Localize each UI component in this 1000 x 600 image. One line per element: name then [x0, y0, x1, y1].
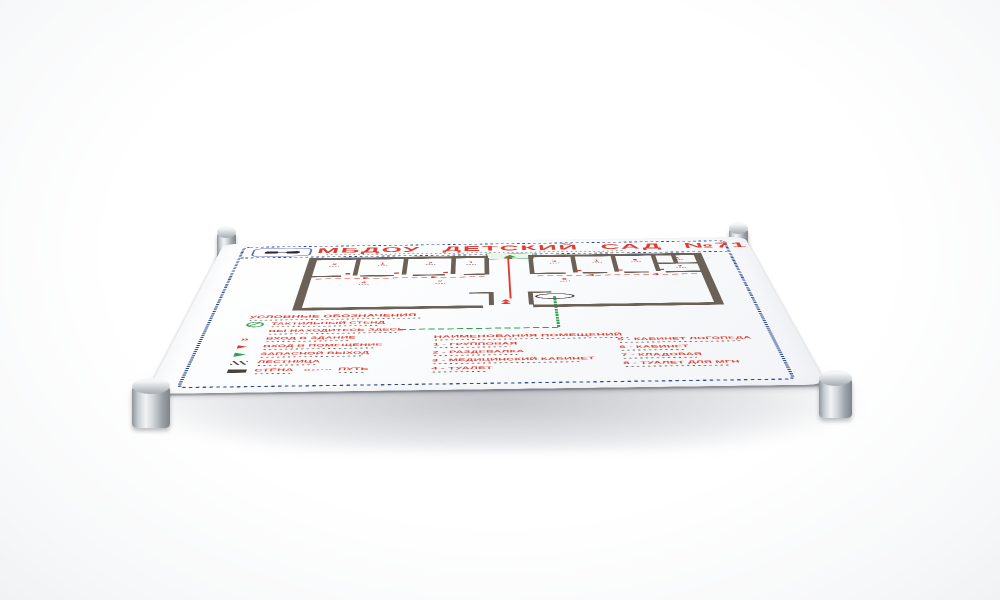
floor-plan: 212131567842	[292, 253, 724, 311]
room-number-marker: 1	[591, 260, 602, 263]
plan-wall	[535, 272, 566, 274]
room-number-marker: 1	[377, 262, 388, 265]
route-arrow-icon	[651, 273, 658, 275]
room-entrance-mark	[618, 269, 623, 270]
plan-wall	[469, 292, 489, 294]
you-are-here-dash-icon	[243, 330, 269, 334]
plan-wall	[402, 259, 409, 275]
braille-dots	[631, 261, 641, 262]
legend-item-emergency-exit: ЗАПАСНОЙ ВЫХОД	[233, 351, 370, 359]
room-number-marker: 4	[358, 281, 369, 285]
route-arrow-icon	[587, 274, 594, 276]
braille-dots	[559, 281, 570, 282]
scene: МБДОУ ДЕТСКИЙ САД №71	[0, 0, 1000, 600]
room-number-marker: 2	[329, 263, 340, 266]
plan-wall	[583, 272, 608, 274]
room-list-item: 5 - КАБИНЕТ ЛОГОПЕДА	[617, 336, 753, 344]
room-entrance-mark	[394, 272, 399, 273]
you-are-here-line-vertical	[553, 296, 560, 327]
legend-label: ПУТЬ	[338, 367, 369, 371]
plan-wall	[360, 275, 394, 277]
room-list-item: 8 - ТУАЛЕТ ДЛЯ МГН	[623, 360, 742, 368]
plan-wall	[533, 291, 552, 293]
plan-wall	[464, 274, 485, 276]
legend-item-you-are-here: ВЫ НАХОДИТЕСЬ ЗДЕСЬ	[242, 328, 405, 336]
room-number-marker: 6	[672, 257, 683, 260]
room-entrance-mark	[345, 273, 350, 274]
sign-plate: МБДОУ ДЕТСКИЙ САД №71	[146, 237, 826, 394]
braille-dots	[592, 262, 602, 263]
plan-wall	[693, 253, 724, 305]
stairs-icon	[230, 361, 248, 365]
braille-dots	[377, 265, 387, 266]
braille-dots	[425, 264, 435, 265]
plate-perspective-wrap: МБДОУ ДЕТСКИЙ САД №71	[187, 51, 784, 559]
room-list-item: 1 - ГРУППОВАЯ	[433, 342, 518, 349]
legend-item-stairs: ЛЕСТНИЦА	[229, 359, 320, 366]
braille-dots	[549, 263, 559, 264]
building-entrance-arrow-icon	[501, 301, 511, 303]
braille-dots	[435, 283, 446, 284]
braille-dots	[676, 267, 687, 268]
room-number-marker: 3	[549, 260, 560, 263]
legend-header: УСЛОВНЫЕ ОБОЗНАЧЕНИЯ	[248, 313, 463, 321]
plan-wall	[533, 302, 724, 307]
legend-item-room-entrance: ВХОД В ПОМЕЩЕНИЕ	[236, 343, 383, 351]
room-list-item: 2 - РАЗДЕВАЛКА	[432, 349, 525, 356]
room-entrance-mark	[577, 270, 582, 271]
room-list-item: 3 - МЕДИЦИНСКИЙ КАБИНЕТ	[432, 356, 596, 364]
emergency-exit-arrow-icon	[233, 353, 247, 357]
evacuation-route-right	[538, 273, 697, 276]
plan-wall	[624, 271, 649, 273]
room-list-item: 7 - КЛАДОВАЯ	[621, 352, 704, 359]
room-number-marker: 2	[425, 262, 435, 265]
room-number-marker: 1	[466, 261, 476, 264]
room-number-marker: 5	[630, 259, 641, 262]
plan-wall	[451, 258, 456, 274]
plan-wall	[666, 271, 701, 273]
legend-item-wall-path: СТЕНА ПУТЬ	[226, 367, 369, 375]
braille-dots	[431, 370, 488, 373]
room-entrance-mark	[443, 272, 448, 273]
plan-wall	[528, 291, 534, 304]
room-entrance-mark	[659, 269, 664, 270]
glasses-icon	[250, 248, 313, 257]
room-list-item: 4 - ТУАЛЕТ	[431, 366, 493, 373]
path-dotted-icon	[304, 369, 331, 370]
braille-dots	[358, 284, 369, 285]
room-number-marker: 2	[435, 280, 446, 284]
braille-dots	[256, 364, 316, 367]
plan-wall	[413, 274, 445, 276]
plan-wall	[353, 260, 361, 276]
route-arrow-icon	[363, 277, 370, 279]
route-arrow-icon	[503, 256, 512, 258]
wall-icon	[227, 369, 247, 373]
room-number-marker: 8	[559, 278, 570, 282]
glasses-lens-icon	[264, 251, 278, 253]
plan-wall	[292, 258, 318, 311]
room-entrance-arrow-icon	[237, 345, 248, 349]
room-list-item: 6 - КАБИНЕТ	[619, 344, 690, 351]
braille-dots	[337, 371, 366, 373]
legend-item-tactile-stand: ТАКТИЛЬНЫЙ СТЕНД	[245, 321, 385, 328]
plan-wall	[484, 258, 489, 275]
plan-wall	[292, 305, 483, 310]
sign-printed-area: МБДОУ ДЕТСКИЙ САД №71	[176, 240, 796, 388]
braille-dots	[253, 372, 291, 374]
building-entrance-arrow-icon: »	[240, 337, 248, 341]
glasses-bridge	[278, 252, 286, 253]
evacuation-route-main	[507, 258, 511, 298]
tactile-stand-icon	[245, 322, 265, 328]
braille-dots	[329, 266, 339, 267]
rooms-header: НАИМЕНОВАНИЯ ПОМЕЩЕНИЙ	[433, 332, 630, 341]
evacuation-route-left	[316, 276, 485, 279]
you-are-here-line-horizontal	[400, 327, 559, 330]
legend-item-building-entrance: » ВХОД В ЗДАНИЕ	[239, 336, 356, 343]
route-arrow-icon	[431, 276, 438, 278]
plan-wall	[312, 276, 342, 278]
braille-dots	[672, 259, 682, 260]
plan-wall	[489, 292, 494, 305]
standoff-bottom-right	[819, 378, 852, 418]
glasses-lens-icon	[286, 251, 300, 253]
standoff-bottom-left	[132, 386, 170, 428]
plan-wall	[528, 257, 534, 274]
legend-label: СТЕНА	[254, 368, 295, 373]
room-number-marker: 7	[675, 265, 687, 268]
braille-dots	[466, 264, 476, 265]
